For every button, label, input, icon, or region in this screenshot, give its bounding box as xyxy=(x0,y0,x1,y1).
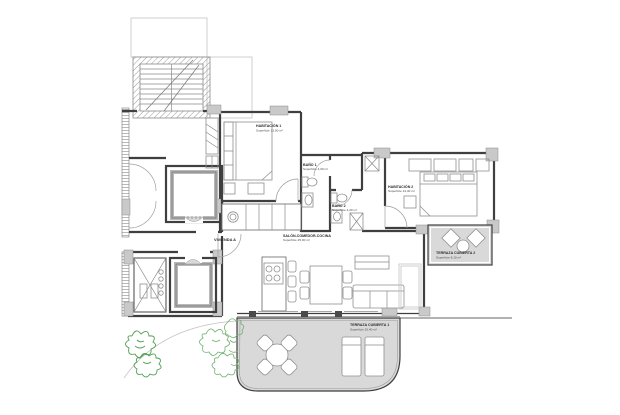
closet2 xyxy=(434,159,456,171)
door-arc-bedroom1 xyxy=(276,179,298,201)
toilet2-bowl xyxy=(337,194,347,202)
laundry-box xyxy=(365,156,379,171)
label-terraza1-name: TERRAZA CUBIERTA 1 xyxy=(350,323,389,327)
closet2 xyxy=(459,159,473,171)
nightstand2 xyxy=(404,196,416,208)
kitchen xyxy=(222,204,301,311)
stool xyxy=(288,276,296,287)
tv-bench xyxy=(355,256,389,269)
sun-lounger xyxy=(365,337,384,376)
bed2 xyxy=(420,172,477,216)
pillar xyxy=(122,199,130,215)
label-habitacion2-area: Superficie 14,40 m² xyxy=(388,189,415,193)
elevator2-cab xyxy=(176,264,211,306)
facade-post xyxy=(301,311,308,317)
hatched-wall-upper xyxy=(122,108,129,237)
pillar xyxy=(124,250,133,264)
label-bano2-area: Superficie 4,20 m² xyxy=(332,208,357,212)
label-vivienda: VIVIENDA A xyxy=(214,237,236,242)
stool xyxy=(288,261,296,272)
closet2 xyxy=(409,159,431,171)
elevator-lower xyxy=(170,256,216,312)
toilet2-tank xyxy=(331,193,337,203)
sink2-basin xyxy=(334,212,341,221)
dining-chair xyxy=(300,287,309,299)
label-terraza2-area: Superficie 8,10 m² xyxy=(436,256,461,260)
pillar xyxy=(207,105,221,114)
shaft-dot xyxy=(159,284,163,288)
pillar xyxy=(213,302,222,316)
neighbor-outline-top xyxy=(131,18,207,57)
floor-plan-page: HABITACIÓN 1 Superficie 13,00 m² BAÑO 1 … xyxy=(0,0,620,415)
elevator-cab xyxy=(172,172,216,218)
stool xyxy=(288,291,296,302)
garden xyxy=(124,319,244,378)
living xyxy=(353,256,421,309)
pillar xyxy=(416,225,428,234)
shaft-dot xyxy=(159,277,163,281)
elevator-upper xyxy=(166,166,222,223)
shaft-dot xyxy=(159,291,163,295)
shaft-dot xyxy=(159,270,163,274)
pillar xyxy=(374,148,390,158)
pillar xyxy=(270,106,288,115)
nightstand1 xyxy=(224,183,235,194)
dining-chair xyxy=(300,271,309,283)
dining xyxy=(300,266,352,304)
label-habitacion1-area: Superficie 13,00 m² xyxy=(256,129,283,133)
bedroom2-furniture xyxy=(404,159,489,216)
label-terraza2-name: TERRAZA CUBIERTA 2 xyxy=(436,251,475,255)
door-arc-bedroom2 xyxy=(385,206,407,228)
laundry-cross xyxy=(365,156,379,171)
facade-post xyxy=(249,311,256,317)
toilet1-bowl xyxy=(307,178,317,186)
kitchen-counter xyxy=(222,204,301,230)
service-shaft-lower xyxy=(134,258,166,312)
dining-table xyxy=(310,266,342,304)
label-salon-area: Superficie 25,90 m² xyxy=(283,238,310,242)
label-habitacion1-name: HABITACIÓN 1 xyxy=(256,123,281,128)
bush-cluster-left xyxy=(126,331,162,377)
sun-lounger xyxy=(342,337,361,376)
floor-plan-drawing: HABITACIÓN 1 Superficie 13,00 m² BAÑO 1 … xyxy=(0,0,620,415)
shower2-cross xyxy=(350,213,363,230)
staircase xyxy=(133,57,210,118)
dresser1 xyxy=(248,183,264,194)
sofa xyxy=(353,285,404,308)
wardrobe1-hatch xyxy=(206,124,218,148)
sink1-basin xyxy=(305,195,312,205)
dining-chair xyxy=(343,271,352,283)
pillar xyxy=(124,302,133,316)
door-arc-lobby-2 xyxy=(129,201,156,228)
dining-chair xyxy=(343,287,352,299)
facade-post xyxy=(335,311,342,317)
label-terraza1-area: Superficie 20,40 m² xyxy=(350,328,377,332)
door-arc-lobby-1 xyxy=(129,164,156,191)
bath1-fixtures xyxy=(302,177,317,207)
label-bano1-area: Superficie 4,00 m² xyxy=(303,167,328,171)
